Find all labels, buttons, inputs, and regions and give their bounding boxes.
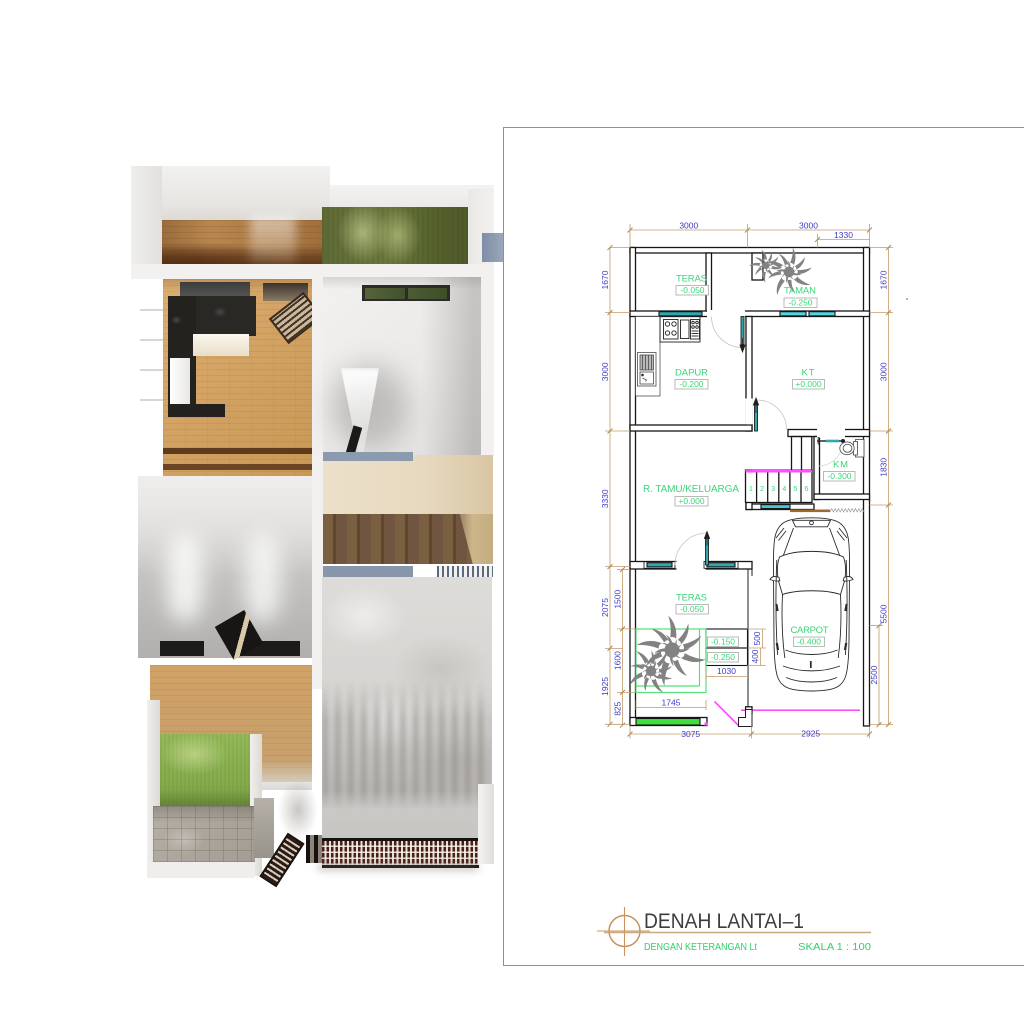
svg-text:SKALA 1 : 100: SKALA 1 : 100 — [798, 942, 871, 953]
svg-text:DENAH LANTAI–1: DENAH LANTAI–1 — [644, 909, 804, 933]
svg-text:DENGAN KETERANGAN Lt: DENGAN KETERANGAN Lt — [644, 942, 757, 953]
